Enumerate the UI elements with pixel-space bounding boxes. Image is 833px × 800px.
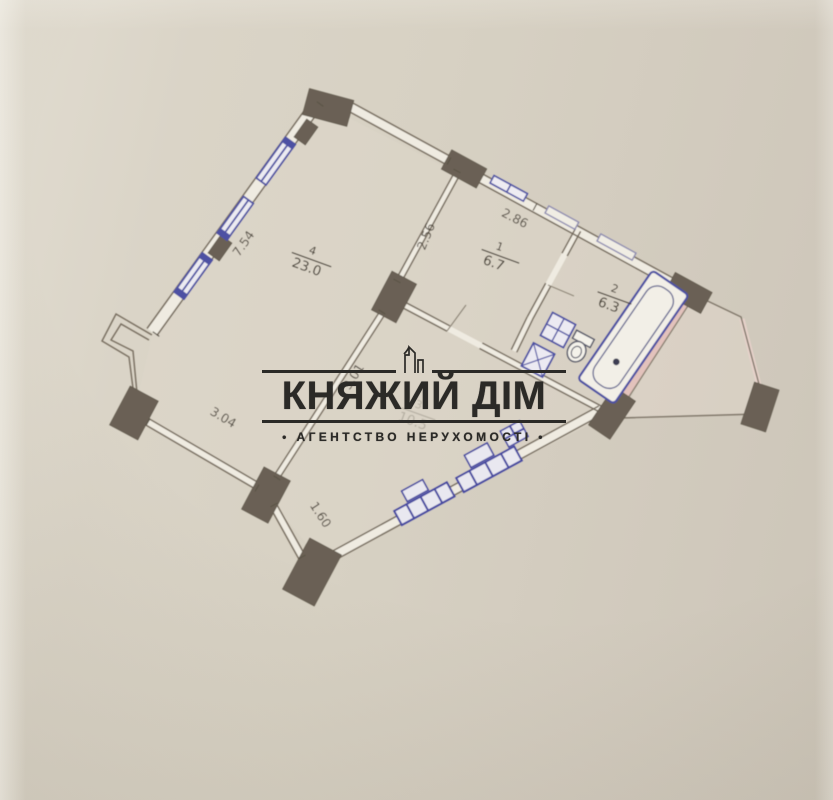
floorplan-photo: 7.54 2.56 2.86 3.04 3.01 1.60 4 23.0 1 6… bbox=[0, 0, 833, 800]
agency-name: КНЯЖИЙ ДІМ bbox=[262, 375, 566, 418]
watermark-top-rule bbox=[262, 342, 566, 373]
highrise-building-icon bbox=[399, 343, 429, 373]
agency-tagline: • АГЕНТСТВО НЕРУХОМОСТІ • bbox=[262, 430, 566, 444]
divider-line bbox=[262, 420, 566, 423]
divider-line bbox=[262, 370, 396, 373]
watermark: КНЯЖИЙ ДІМ • АГЕНТСТВО НЕРУХОМОСТІ • bbox=[262, 342, 566, 444]
divider-line bbox=[432, 370, 566, 373]
